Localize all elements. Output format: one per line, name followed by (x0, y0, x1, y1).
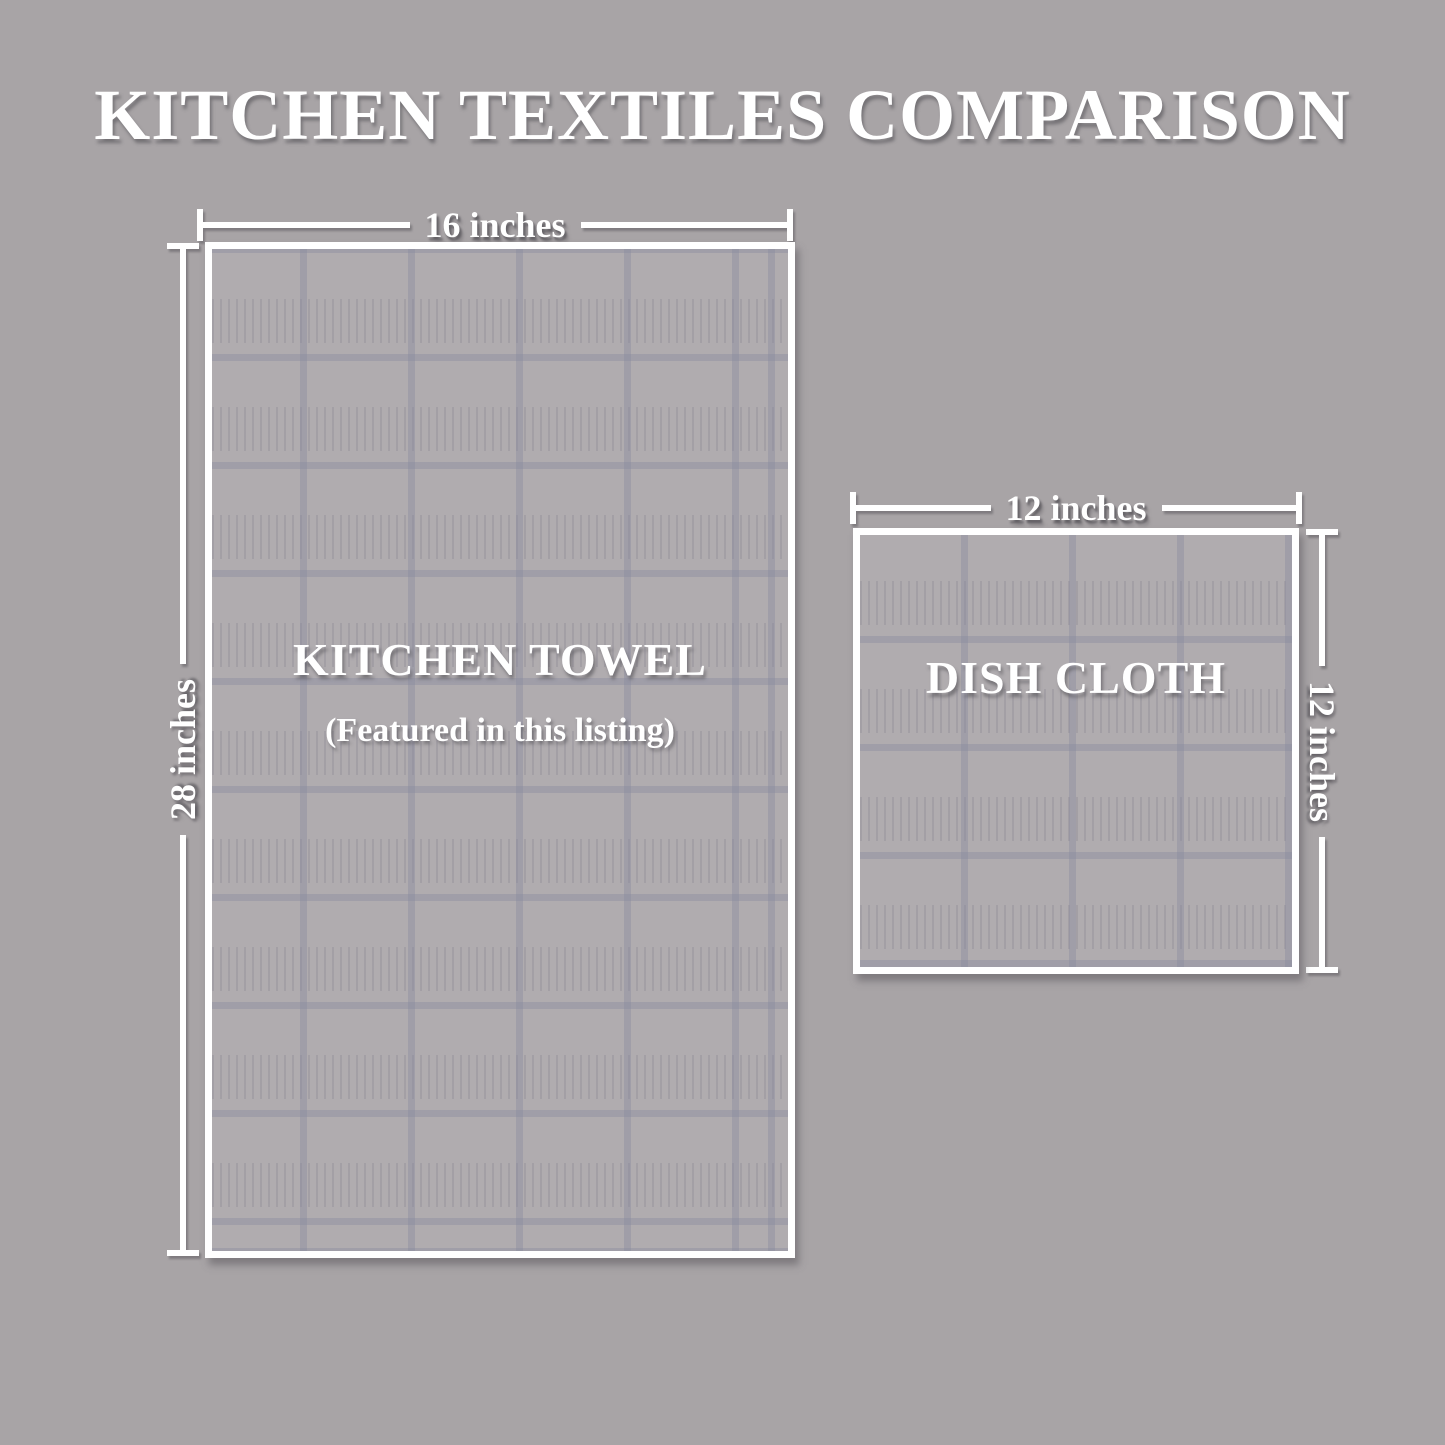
dimension-tick-bottom (1306, 967, 1338, 973)
towel-width-label: 16 inches (425, 207, 566, 243)
kitchen-towel-label: KITCHEN TOWEL (212, 635, 788, 686)
dimension-line (180, 249, 186, 664)
dimension-line (1162, 505, 1297, 511)
dimension-tick-right (1296, 492, 1302, 524)
comparison-diagram: KITCHEN TEXTILES COMPARISON 16 inches 28… (0, 0, 1445, 1445)
dish-cloth-width-dimension: 12 inches (850, 492, 1302, 524)
dimension-tick-bottom (167, 1250, 199, 1256)
dish-cloth-caption: DISH CLOTH (860, 653, 1292, 704)
kitchen-towel-swatch: KITCHEN TOWEL (Featured in this listing) (205, 242, 795, 1258)
towel-height-label: 28 inches (165, 679, 201, 820)
dimension-line (180, 835, 186, 1250)
towel-height-dimension: 28 inches (167, 243, 199, 1256)
dimension-line (1319, 535, 1325, 666)
dimension-line (203, 222, 410, 228)
dimension-line (581, 222, 788, 228)
dish-cloth-width-label: 12 inches (1006, 490, 1147, 526)
dimension-line (856, 505, 991, 511)
dish-cloth-height-dimension: 12 inches (1306, 529, 1338, 973)
kitchen-towel-sublabel: (Featured in this listing) (212, 712, 788, 749)
dish-cloth-label: DISH CLOTH (860, 653, 1292, 704)
dish-cloth-swatch: DISH CLOTH (853, 528, 1299, 974)
towel-width-dimension: 16 inches (197, 209, 793, 241)
page-title: KITCHEN TEXTILES COMPARISON (0, 74, 1445, 157)
kitchen-towel-caption: KITCHEN TOWEL (Featured in this listing) (212, 635, 788, 749)
dish-cloth-height-label: 12 inches (1304, 681, 1340, 822)
dimension-line (1319, 837, 1325, 968)
dimension-tick-right (787, 209, 793, 241)
